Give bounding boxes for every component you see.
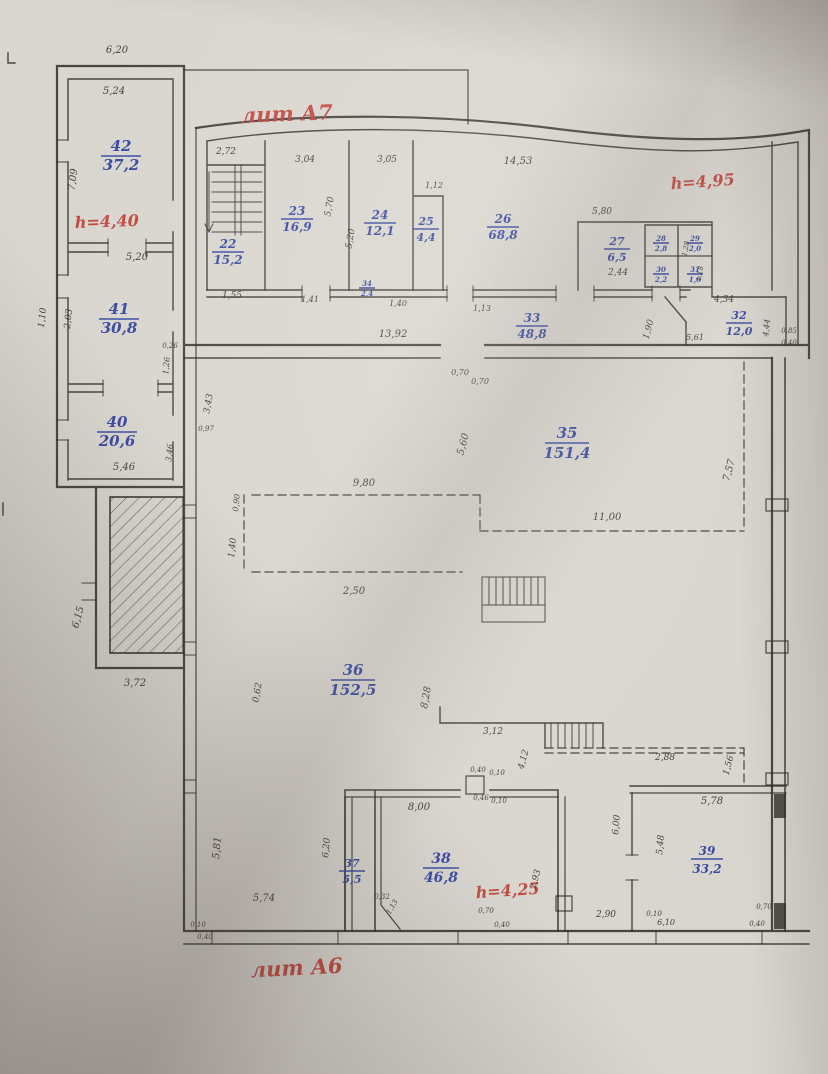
svg-text:5,61: 5,61: [686, 333, 704, 342]
svg-text:0,26: 0,26: [162, 342, 178, 350]
svg-text:30,8: 30,8: [101, 319, 138, 337]
svg-text:5,60: 5,60: [455, 432, 472, 457]
svg-text:5,74: 5,74: [253, 893, 275, 904]
svg-text:28: 28: [655, 234, 666, 243]
svg-text:1,18: 1,18: [695, 265, 706, 282]
label-lit-a7: лит А7: [240, 99, 333, 127]
svg-text:25: 25: [417, 215, 433, 228]
svg-text:2,03: 2,03: [63, 308, 75, 330]
svg-text:13,92: 13,92: [379, 329, 408, 340]
svg-text:0,40: 0,40: [197, 933, 213, 941]
svg-text:35: 35: [557, 424, 578, 442]
svg-text:0,10: 0,10: [491, 797, 507, 805]
svg-text:2,93: 2,93: [528, 868, 543, 891]
room-label-26: 26 68,8: [487, 212, 519, 242]
room-label-22: 22 15,2: [212, 237, 244, 267]
svg-text:5,5: 5,5: [342, 873, 361, 886]
label-h-440: h=4,40: [74, 211, 139, 232]
room-label-39: 39 33,2: [691, 844, 723, 876]
svg-text:4,44: 4,44: [761, 318, 772, 338]
svg-text:1,56: 1,56: [722, 754, 737, 776]
svg-text:4,34: 4,34: [713, 295, 734, 305]
svg-text:23: 23: [288, 204, 306, 218]
svg-text:1,10: 1,10: [37, 307, 49, 328]
svg-text:3,12: 3,12: [483, 727, 503, 737]
svg-text:48,8: 48,8: [517, 327, 547, 341]
svg-text:4,4: 4,4: [416, 231, 435, 244]
svg-text:36: 36: [343, 661, 364, 679]
svg-text:0,40: 0,40: [470, 766, 486, 774]
svg-text:1,26: 1,26: [161, 356, 172, 375]
room-label-24: 24 12,1: [364, 208, 396, 238]
svg-text:6,00: 6,00: [611, 814, 623, 835]
room-label-38: 38 46,8: [423, 851, 459, 886]
room-label-35: 35 151,4: [544, 424, 591, 462]
svg-text:5,20: 5,20: [126, 252, 149, 263]
svg-text:1,90: 1,90: [642, 318, 657, 340]
svg-text:5,46: 5,46: [113, 462, 136, 473]
svg-text:32: 32: [731, 309, 747, 322]
svg-text:2,8: 2,8: [654, 244, 667, 253]
svg-text:40: 40: [107, 413, 128, 431]
staircase-lower: [551, 723, 593, 748]
svg-text:38: 38: [431, 851, 451, 867]
room-label-28: 28 2,8: [653, 234, 669, 253]
svg-text:33: 33: [524, 311, 541, 325]
svg-text:30: 30: [656, 265, 666, 274]
floor-plan-svg: лит А7 h=4,95 h=4,40 h=4,25 лит А6 42 37…: [0, 0, 828, 1074]
svg-text:0,70: 0,70: [471, 377, 489, 386]
svg-text:3,46: 3,46: [164, 443, 175, 462]
room-label-27: 27 6,5: [604, 235, 630, 264]
staircase-top: [205, 165, 262, 235]
svg-text:0,10: 0,10: [489, 769, 505, 777]
svg-text:1,40: 1,40: [389, 299, 407, 308]
svg-text:34: 34: [362, 279, 372, 288]
svg-text:14,53: 14,53: [504, 156, 533, 167]
room-label-41: 41 30,8: [99, 300, 139, 337]
scanned-floor-plan-photo: лит А7 h=4,95 h=4,40 h=4,25 лит А6 42 37…: [0, 0, 828, 1074]
svg-text:41: 41: [109, 300, 130, 318]
room-label-30: 30 2,2: [653, 265, 669, 284]
svg-text:3,05: 3,05: [377, 155, 397, 165]
svg-text:42: 42: [111, 137, 132, 155]
room-label-25: 25 4,4: [413, 215, 439, 244]
svg-text:2,44: 2,44: [607, 268, 628, 278]
svg-text:16,9: 16,9: [282, 220, 312, 234]
svg-text:5,70: 5,70: [323, 196, 336, 218]
svg-text:0,70: 0,70: [451, 368, 469, 377]
room-label-23: 23 16,9: [281, 204, 313, 234]
room-labels: 42 37,2 41 30,8 40 20,6 22 15,2 23 16,9 …: [97, 137, 753, 886]
svg-text:0,85: 0,85: [781, 327, 797, 335]
svg-text:6,15: 6,15: [70, 605, 86, 629]
svg-text:39: 39: [699, 844, 716, 858]
svg-text:0,62: 0,62: [251, 682, 264, 704]
svg-text:3,72: 3,72: [124, 678, 146, 689]
svg-text:6,20: 6,20: [321, 837, 333, 858]
svg-text:0,32: 0,32: [374, 893, 390, 901]
svg-text:9,80: 9,80: [353, 478, 376, 489]
svg-text:5,78: 5,78: [701, 796, 723, 807]
svg-text:7,09: 7,09: [67, 167, 81, 191]
svg-text:0,40: 0,40: [494, 921, 510, 929]
svg-text:2,90: 2,90: [595, 910, 616, 920]
svg-text:22: 22: [219, 237, 237, 251]
svg-text:0,40: 0,40: [781, 339, 797, 347]
svg-text:1,55: 1,55: [222, 291, 242, 301]
svg-text:27: 27: [608, 235, 625, 248]
svg-text:0,10: 0,10: [190, 921, 206, 929]
svg-text:2,72: 2,72: [215, 147, 236, 157]
svg-text:1,28: 1,28: [681, 240, 692, 257]
svg-text:33,2: 33,2: [692, 862, 721, 876]
staircase-middle: [482, 577, 545, 622]
svg-text:37,2: 37,2: [103, 156, 140, 174]
svg-text:46,8: 46,8: [424, 870, 458, 886]
svg-text:15,2: 15,2: [213, 253, 242, 267]
svg-text:0,46: 0,46: [473, 794, 489, 802]
svg-text:11,00: 11,00: [593, 512, 622, 523]
svg-text:0,97: 0,97: [198, 425, 214, 433]
margin-marks: [3, 53, 15, 515]
svg-text:5,80: 5,80: [592, 207, 612, 217]
room-label-36: 36 152,5: [330, 661, 377, 699]
label-h-495: h=4,95: [670, 170, 735, 193]
room-label-40: 40 20,6: [97, 413, 137, 450]
svg-text:6,20: 6,20: [106, 45, 129, 56]
svg-text:2,50: 2,50: [342, 586, 366, 597]
svg-text:24: 24: [371, 208, 389, 222]
svg-text:4,12: 4,12: [516, 748, 531, 771]
svg-text:0,70: 0,70: [756, 903, 772, 911]
svg-text:6,5: 6,5: [607, 251, 626, 264]
svg-text:3,04: 3,04: [295, 155, 315, 165]
room-label-37: 37 5,5: [339, 857, 365, 886]
svg-text:0,40: 0,40: [749, 920, 765, 928]
svg-text:1,12: 1,12: [425, 181, 443, 190]
svg-text:5,20: 5,20: [344, 228, 357, 250]
svg-text:151,4: 151,4: [544, 444, 591, 462]
svg-text:2,2: 2,2: [654, 275, 667, 284]
svg-text:37: 37: [344, 857, 360, 870]
svg-text:0,10: 0,10: [646, 910, 662, 918]
svg-text:1,40: 1,40: [227, 537, 239, 558]
svg-text:5,48: 5,48: [655, 834, 667, 855]
svg-text:12,1: 12,1: [365, 224, 394, 238]
svg-text:8,28: 8,28: [419, 686, 434, 710]
svg-text:7,57: 7,57: [721, 458, 738, 483]
svg-text:6,10: 6,10: [657, 918, 675, 927]
svg-text:5,81: 5,81: [211, 836, 224, 859]
room-label-34: 34 2,4: [359, 279, 375, 298]
svg-text:68,8: 68,8: [488, 228, 518, 242]
svg-text:3,43: 3,43: [202, 393, 215, 415]
label-lit-a6: лит А6: [250, 953, 343, 983]
svg-text:2,88: 2,88: [654, 753, 675, 763]
svg-text:2,4: 2,4: [360, 289, 373, 298]
svg-text:0,70: 0,70: [478, 907, 494, 915]
svg-text:1,13: 1,13: [473, 304, 491, 313]
svg-text:5,24: 5,24: [103, 86, 125, 97]
hatched-shaft: [110, 497, 183, 653]
svg-text:20,6: 20,6: [98, 432, 136, 450]
svg-text:1,41: 1,41: [301, 295, 319, 304]
svg-text:0,90: 0,90: [231, 493, 242, 512]
svg-text:12,0: 12,0: [726, 325, 753, 338]
svg-text:152,5: 152,5: [330, 681, 377, 699]
svg-text:26: 26: [494, 212, 512, 226]
room-label-32: 32 12,0: [726, 309, 753, 338]
room-label-33-corridor: 33 48,8: [516, 311, 548, 341]
svg-text:8,00: 8,00: [408, 802, 431, 813]
room-label-42: 42 37,2: [101, 137, 141, 174]
